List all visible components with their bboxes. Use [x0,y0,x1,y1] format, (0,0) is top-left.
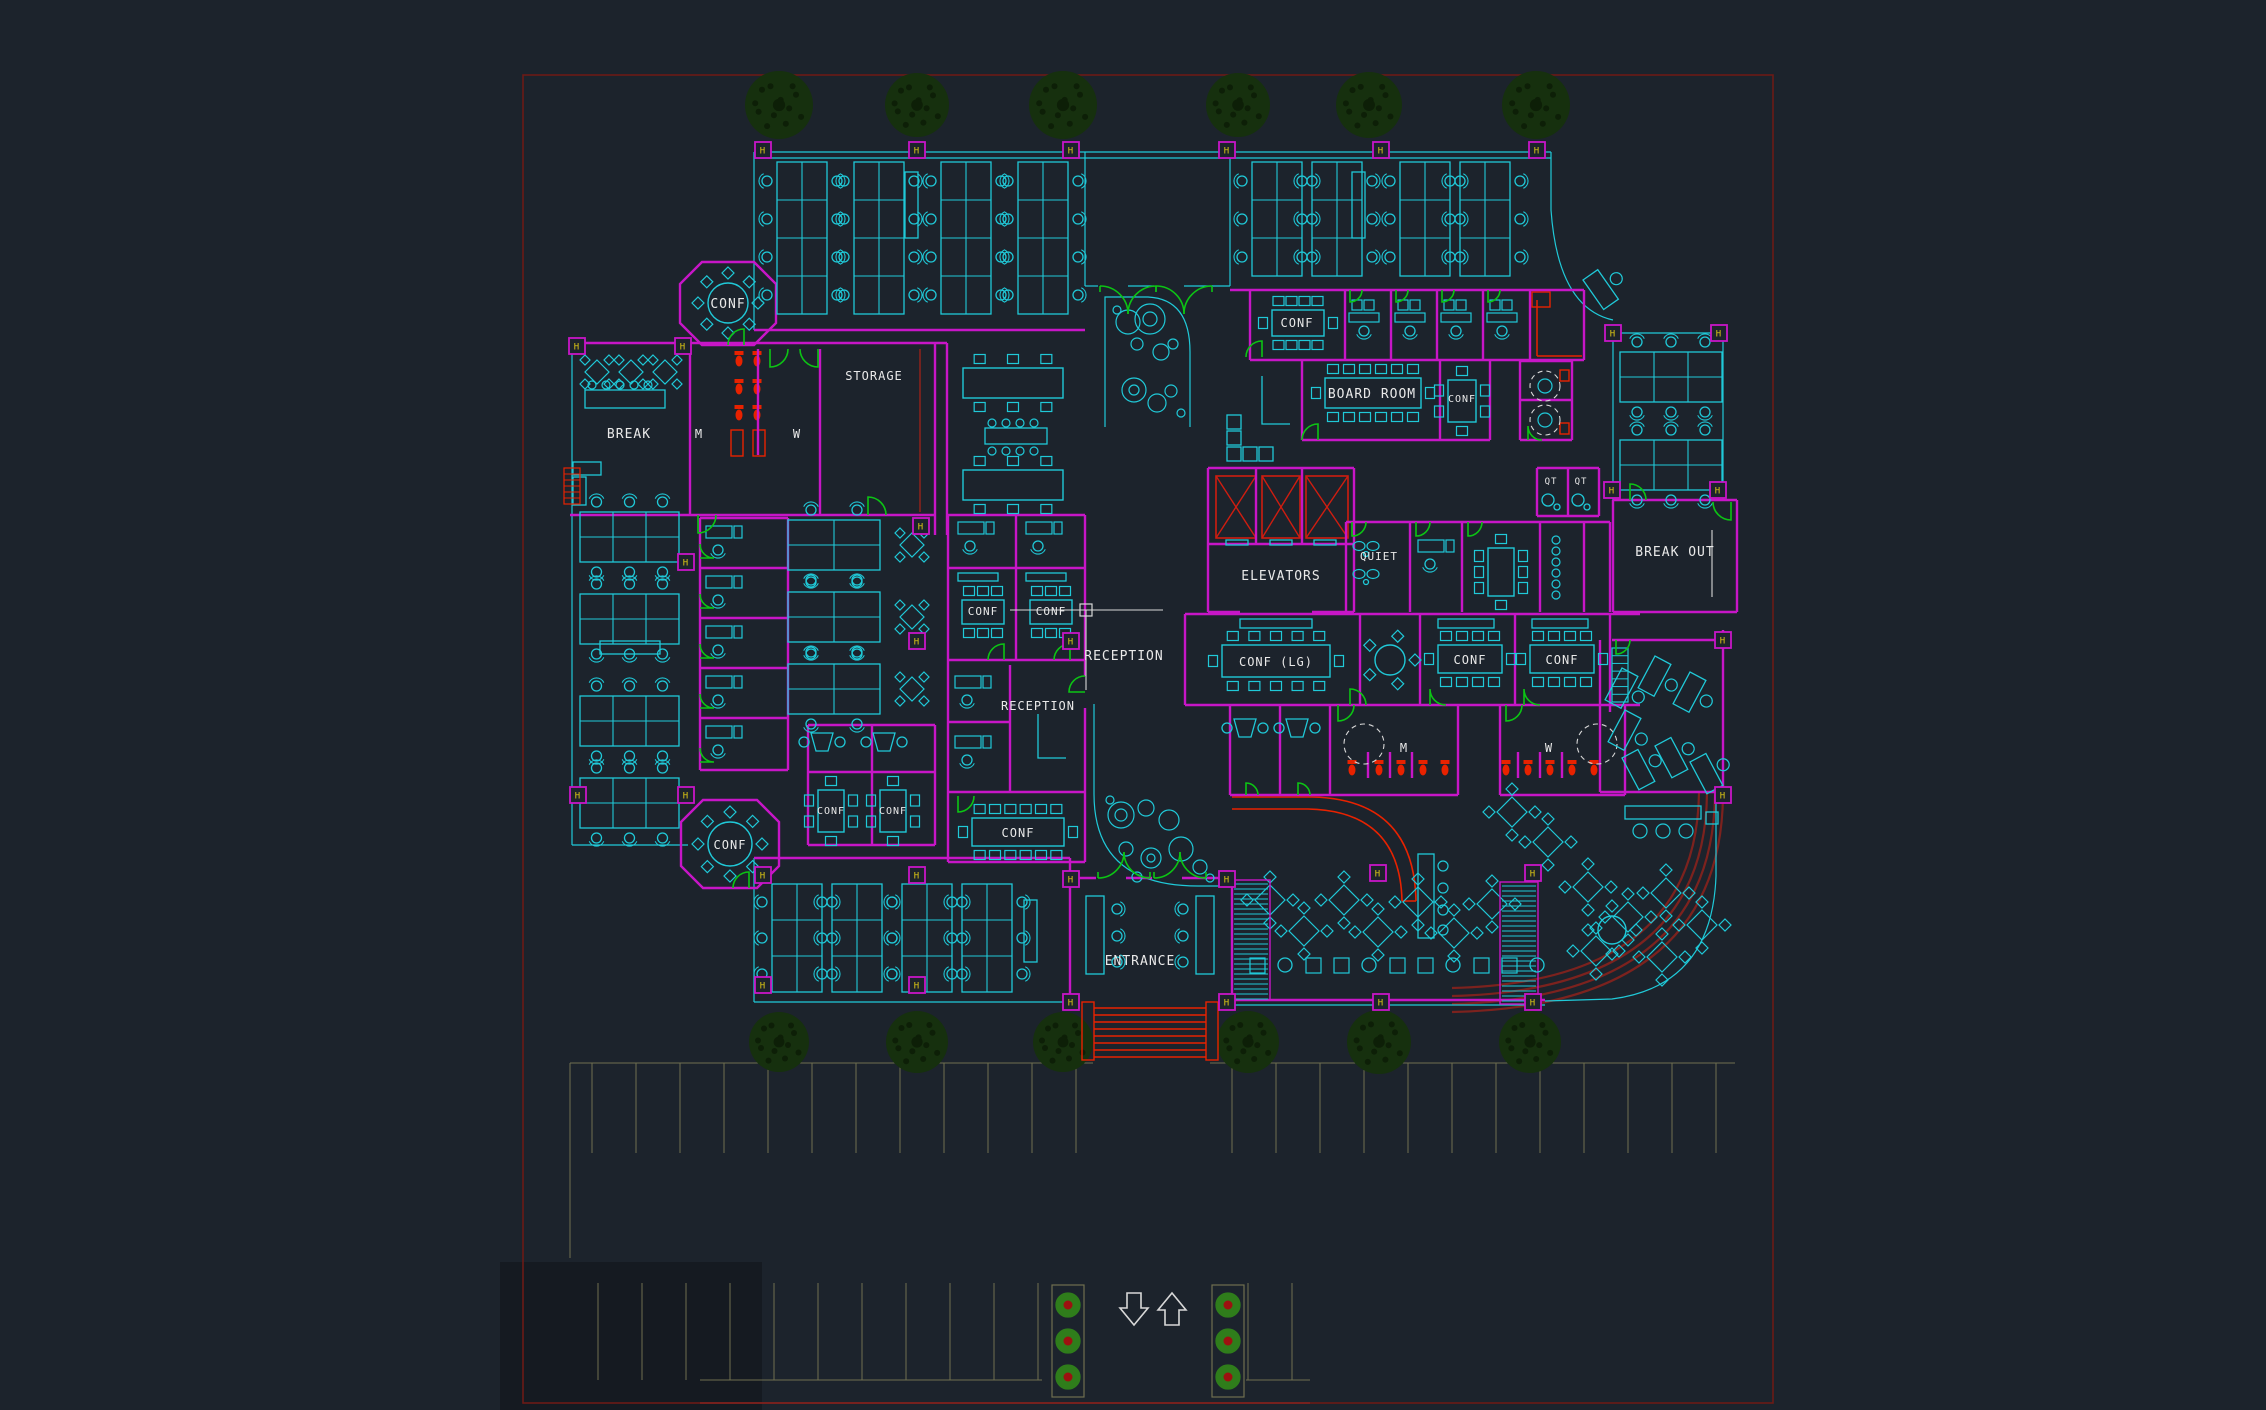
room-label: CONF [1546,653,1579,667]
column-marker: H [760,872,766,882]
column-marker: H [1530,870,1536,880]
column-marker: H [1378,999,1384,1009]
column-marker: H [1224,999,1230,1009]
room-label: CONF [1448,394,1476,405]
column-marker: H [1715,487,1721,497]
room-label: CONF [817,806,845,817]
room-label: CONF (LG) [1239,655,1313,669]
column-marker: H [1068,999,1074,1009]
column-marker: H [1610,330,1616,340]
room-label: QUIET [1360,550,1398,563]
column-marker: H [1224,147,1230,157]
room-label: STORAGE [845,369,903,383]
room-label: RECEPTION [1084,649,1163,664]
column-marker: H [1224,876,1230,886]
column-marker: H [1530,999,1536,1009]
room-label: CONF [879,806,907,817]
column-marker: H [914,147,920,157]
column-marker: H [914,982,920,992]
column-marker: H [760,147,766,157]
column-marker: H [680,343,686,353]
room-label: CONF [710,297,745,312]
room-label: QT [1575,477,1588,487]
column-marker: H [918,523,924,533]
room-label: BREAK OUT [1635,545,1714,560]
room-label: CONF [1002,826,1035,840]
room-label: BREAK [607,427,651,442]
column-marker: H [1375,870,1381,880]
column-marker: H [683,792,689,802]
column-marker: H [1068,638,1074,648]
column-marker: H [1720,792,1726,802]
room-label: QT [1545,477,1558,487]
room-label: ELEVATORS [1241,569,1320,584]
room-label: W [1545,741,1553,755]
room-label: CONF [1281,316,1314,330]
column-marker: H [1068,876,1074,886]
room-label: RECEPTION [1001,699,1075,713]
room-label: CONF [1036,605,1067,618]
room-label: ENTRANCE [1105,954,1176,969]
room-label: W [793,427,801,441]
room-label: CONF [1454,653,1487,667]
column-marker: H [1609,487,1615,497]
column-marker: H [914,638,920,648]
room-label: CONF [714,838,747,852]
column-marker: H [914,872,920,882]
column-marker: H [574,343,580,353]
column-marker: H [683,559,689,569]
column-marker: H [575,792,581,802]
column-marker: H [1378,147,1384,157]
column-marker: H [1068,147,1074,157]
floor-plan-canvas[interactable]: HHHHHHHHHHHHHHHHHHHHHHHHHHHHHHHHCONFBREA… [0,0,2266,1410]
room-label: M [695,427,703,441]
autocad-viewport[interactable]: HHHHHHHHHHHHHHHHHHHHHHHHHHHHHHHHCONFBREA… [0,0,2266,1410]
room-label: M [1400,741,1408,755]
column-marker: H [1720,637,1726,647]
column-marker: H [1716,330,1722,340]
room-label: BOARD ROOM [1328,387,1416,402]
column-marker: H [760,982,766,992]
column-marker: H [1534,147,1540,157]
room-label: CONF [968,605,999,618]
